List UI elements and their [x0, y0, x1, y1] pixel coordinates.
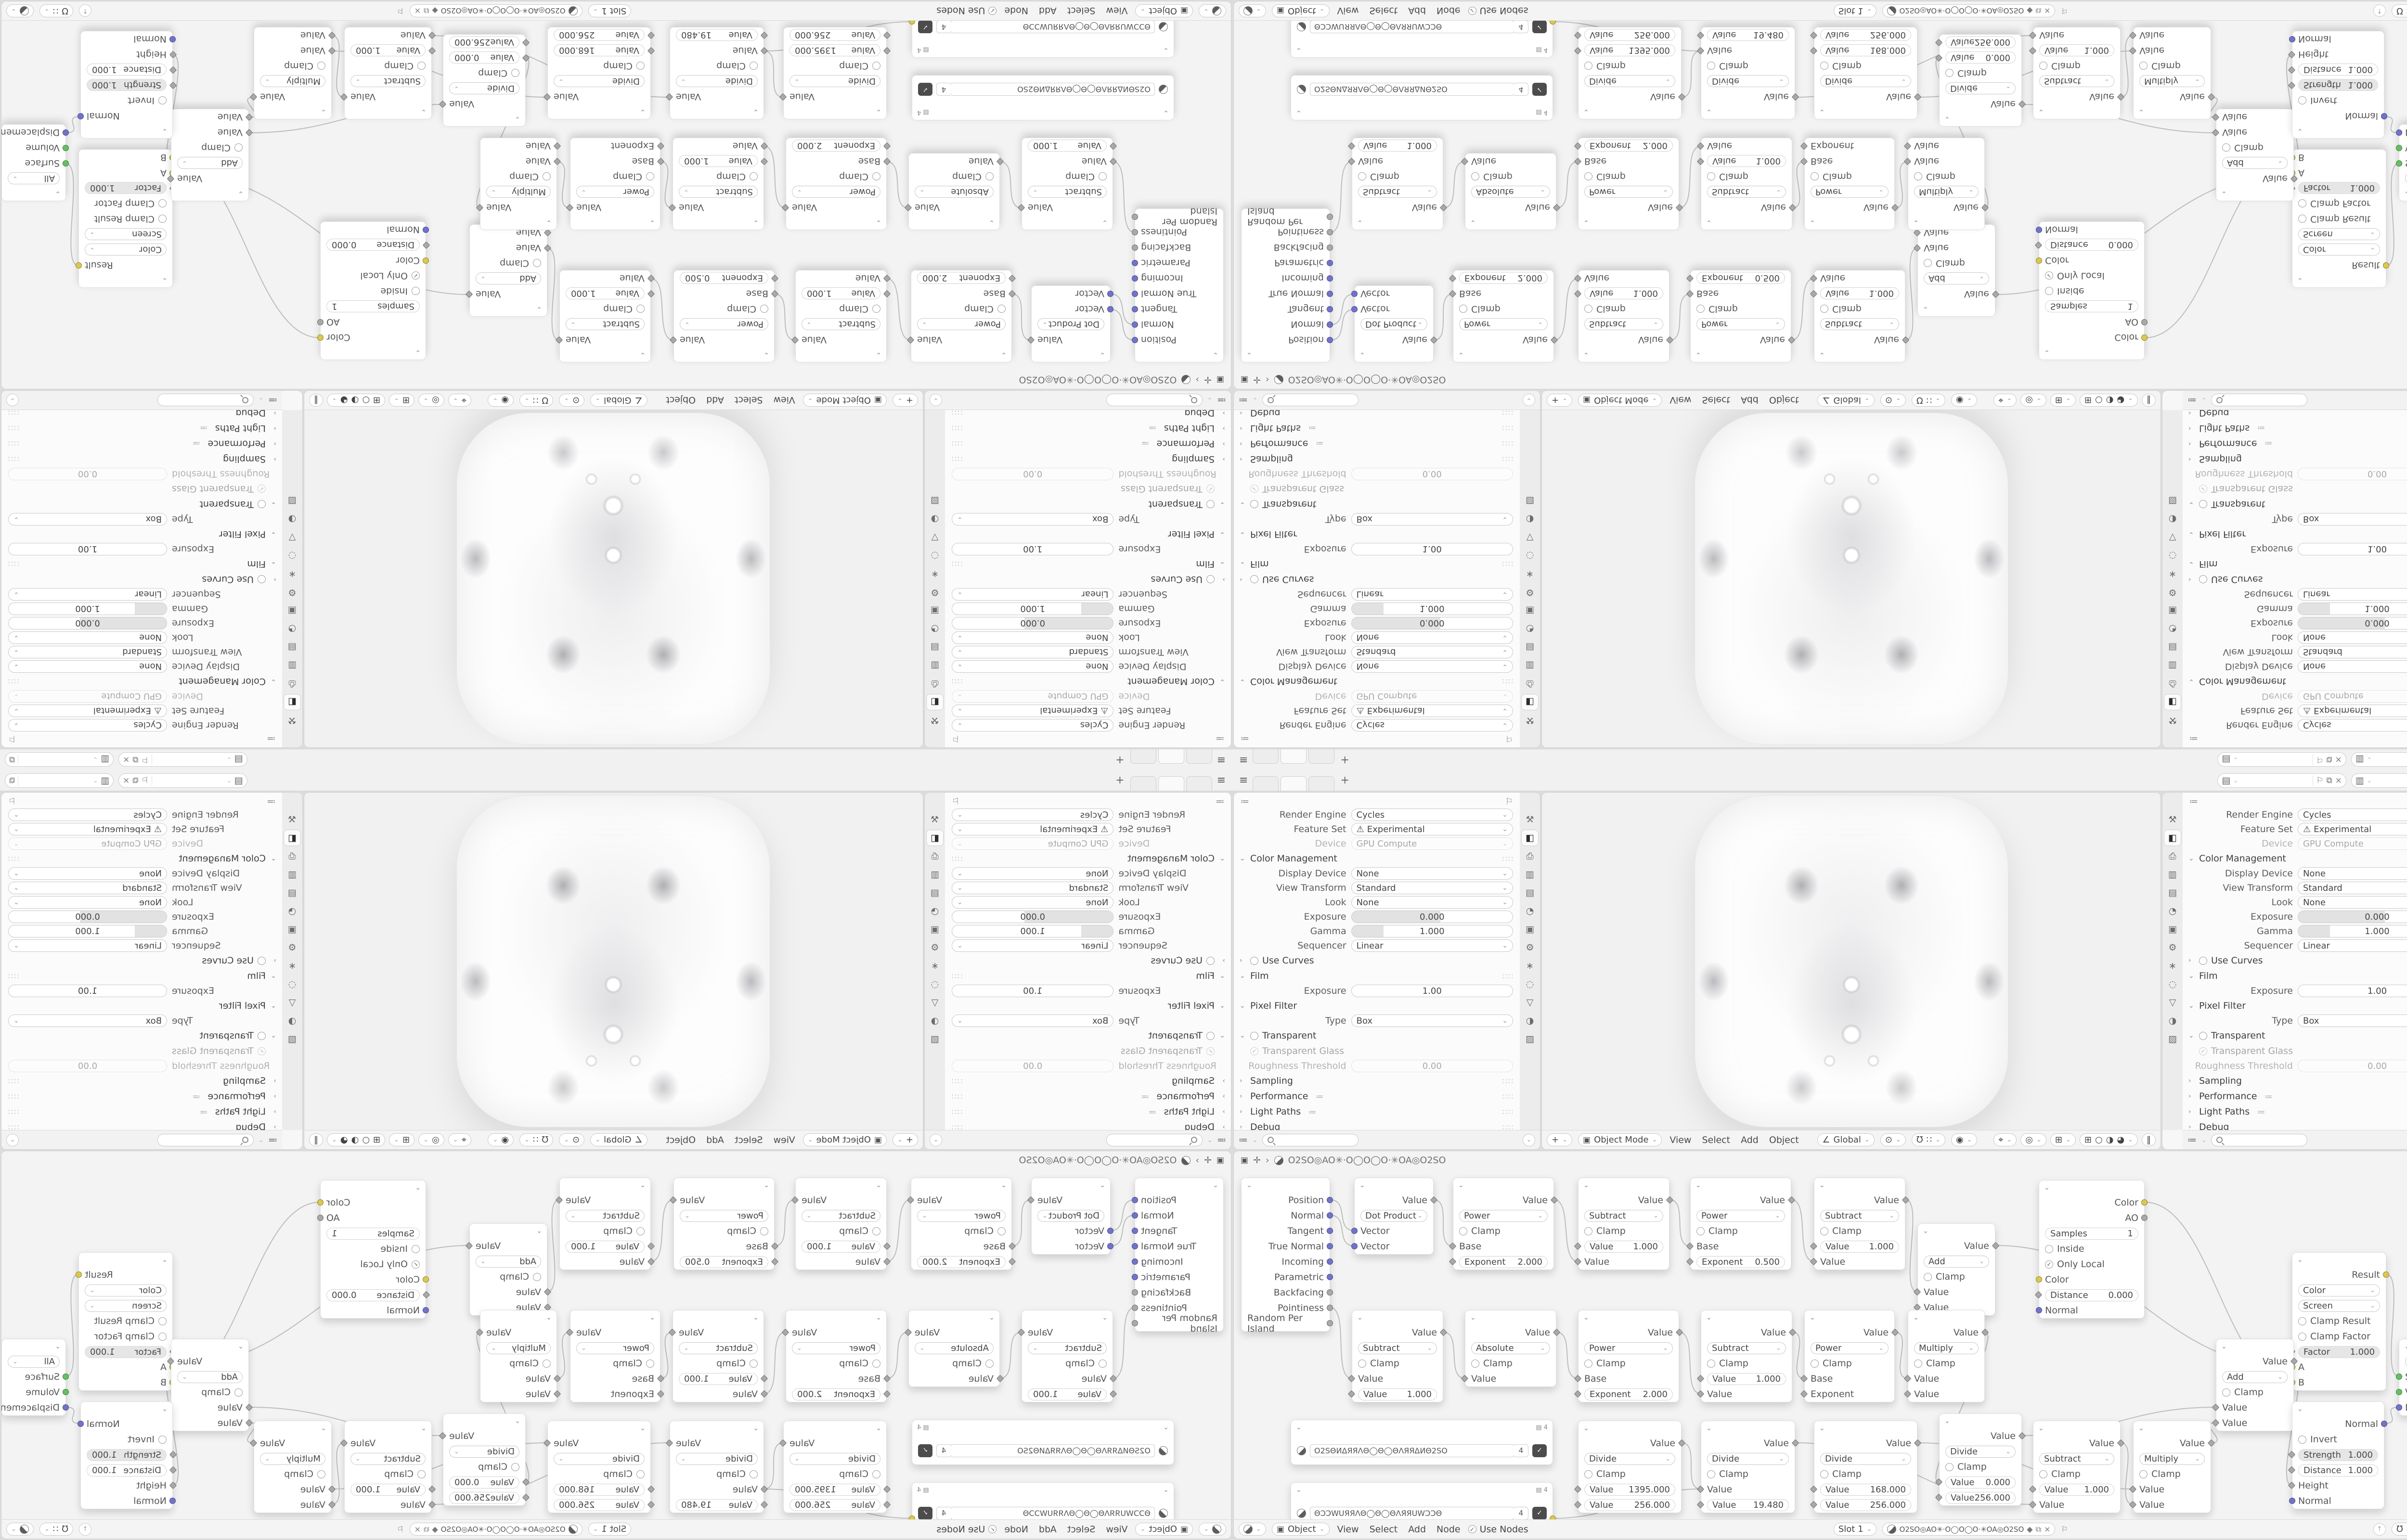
options-chevron-button[interactable]: ⌄: [1523, 1134, 1535, 1146]
properties-tab-object-data[interactable]: ▽: [1522, 995, 1538, 1010]
node-checkbox-clamp[interactable]: [533, 1273, 541, 1281]
tool-dropdown[interactable]: +⌄: [893, 1133, 918, 1146]
node-operation-dropdown[interactable]: Dot Product⌄: [1360, 1210, 1427, 1222]
node-math-power-1[interactable]: ⌄ValuePower⌄ClampBaseExponent2.000: [911, 270, 1012, 362]
node-collapse-icon[interactable]: ⌄: [536, 305, 542, 313]
socket-in-color[interactable]: [423, 257, 429, 264]
properties-search-input[interactable]: [157, 394, 254, 407]
copy-icon[interactable]: ⧉: [2326, 776, 2332, 785]
viewport-menu-add[interactable]: Add: [704, 1135, 726, 1145]
socket-out-result[interactable]: [2383, 1271, 2389, 1278]
node-menu-node[interactable]: Node: [1435, 1524, 1462, 1535]
view-layer-selector[interactable]: ▥⌄ ⧉: [5, 773, 114, 788]
editor-type-dropdown[interactable]: ⌄: [1199, 1523, 1226, 1536]
node-collapse-icon[interactable]: ⌄: [162, 1256, 168, 1264]
pin-icon[interactable]: ⚐: [2061, 6, 2068, 15]
value-field-exposure[interactable]: 1.00: [2298, 543, 2407, 555]
node-menu-select[interactable]: Select: [1065, 1524, 1098, 1535]
value-field-exposure[interactable]: 0.000: [952, 911, 1113, 923]
panel-section-film[interactable]: ⌄Film∷∷: [1234, 556, 1520, 572]
panel-section-film[interactable]: ⌄Film∷∷: [1, 556, 282, 572]
node-collapse-icon[interactable]: ⌄: [1296, 109, 1302, 116]
node-checkbox-clamp[interactable]: [750, 1360, 758, 1368]
preset-icon[interactable]: ≔: [193, 439, 200, 449]
node-checkbox-clamp[interactable]: [543, 173, 551, 181]
node-operation-dropdown[interactable]: Subtract⌄: [1707, 1342, 1786, 1354]
shader-mode-dropdown[interactable]: ▣Object⌄: [1136, 4, 1193, 17]
tool-dropdown[interactable]: +⌄: [893, 394, 918, 407]
viewport-object[interactable]: [457, 796, 770, 1127]
properties-tab-scene[interactable]: ▤: [2164, 640, 2181, 655]
select-device[interactable]: GPU Compute⌄: [8, 690, 167, 703]
preset-icon[interactable]: ≔: [1141, 1092, 1149, 1101]
node-image-data-1[interactable]: ⌄▤ 4O2SΘИΔЯЯΛΘ◯Θ◯ΘΛЯЯΔИΘ2SO4✓: [912, 75, 1174, 120]
node-collapse-icon[interactable]: ⌄: [1102, 1314, 1108, 1322]
node-math-divide-3[interactable]: ⌄ValueDivide⌄ClampValue168.000Value256.0…: [547, 1421, 651, 1513]
workspace-tab-active[interactable]: [1281, 776, 1307, 791]
node-collapse-icon[interactable]: ⌄: [876, 218, 881, 226]
properties-tab-material[interactable]: ◑: [927, 1013, 943, 1028]
proportional-editing-dropdown[interactable]: ◉⌄: [1951, 394, 1977, 407]
viewport-menu-object[interactable]: Object: [1767, 1135, 1801, 1145]
socket-in-displacement[interactable]: [63, 129, 69, 136]
node-math-divide-1[interactable]: ⌄ValueDivide⌄ClampValue1395.000Value256.…: [783, 1421, 887, 1513]
checkbox-row-use-curves[interactable]: ›Use Curves: [945, 572, 1231, 587]
node-math-divide-3[interactable]: ⌄ValueDivide⌄ClampValue168.000Value256.0…: [547, 27, 651, 119]
value-field-exposure[interactable]: 1.00: [952, 543, 1113, 555]
properties-tab-material[interactable]: ◑: [284, 1013, 300, 1028]
workspace-tab[interactable]: [1253, 749, 1279, 764]
panel-section-pixel-filter[interactable]: ⌄Pixel Filter: [1, 998, 282, 1014]
node-collapse-icon[interactable]: ⌄: [1296, 1486, 1302, 1494]
node-collapse-icon[interactable]: ⌄: [1913, 218, 1919, 226]
node-operation-dropdown[interactable]: Subtract⌄: [1584, 319, 1663, 331]
node-checkbox-only-local[interactable]: ✓: [412, 272, 420, 280]
node-vector-math[interactable]: ⌄ValueDot Product⌄VectorVector: [1031, 1178, 1111, 1255]
socket-out-true-normal[interactable]: [1132, 1243, 1138, 1249]
users-count[interactable]: 4: [1514, 83, 1528, 96]
datablock-name-field[interactable]: O2SΘИΔЯЯΛΘ◯Θ◯ΘΛЯЯΔИΘ2SO: [1310, 1444, 1514, 1457]
panel-section-transparent[interactable]: ⌄Transparent: [2183, 497, 2407, 512]
node-collapse-icon[interactable]: ⌄: [2404, 1343, 2407, 1350]
node-math-divide-4[interactable]: ⌄ValueDivide⌄ClampValue0.000Value256.000: [443, 1413, 526, 1506]
value-field-gamma[interactable]: 1.000: [2298, 925, 2407, 937]
value-field-roughness-threshold[interactable]: 0.00: [8, 1060, 167, 1072]
properties-tab-object[interactable]: ▣: [1522, 922, 1538, 937]
pin-icon[interactable]: ⚐: [952, 796, 959, 807]
fake-user-icon[interactable]: ◆: [2027, 1525, 2032, 1534]
node-collapse-icon[interactable]: ⌄: [1583, 1181, 1589, 1189]
socket-in-displacement[interactable]: [63, 1404, 69, 1411]
properties-tab-object[interactable]: ▣: [1522, 603, 1538, 618]
node-value-field-value[interactable]: Value256.000: [1584, 1499, 1675, 1511]
use-nodes-checkbox[interactable]: ✓Use Nodes: [1468, 6, 1528, 16]
node-collapse-icon[interactable]: ⌄: [2221, 1343, 2227, 1350]
panel-section-sampling[interactable]: ›Sampling∷∷: [945, 451, 1231, 467]
tool-dropdown[interactable]: +⌄: [1547, 1133, 1572, 1146]
node-checkbox-clamp[interactable]: [985, 1360, 994, 1368]
value-field-exposure[interactable]: 1.00: [8, 543, 167, 555]
snap-toggle[interactable]: Ʊ∷⌄: [519, 394, 553, 407]
node-value-field-value[interactable]: Value256.000: [449, 1492, 519, 1504]
panel-section-transparent[interactable]: ⌄Transparent: [1234, 1028, 1520, 1043]
socket-out-ao[interactable]: [2141, 1215, 2148, 1221]
node-checkbox-clamp[interactable]: [750, 62, 758, 70]
value-field-gamma[interactable]: 1.000: [952, 603, 1113, 615]
node-menu-add[interactable]: Add: [1037, 6, 1059, 16]
node-value-field-value[interactable]: Value256.000: [1820, 29, 1911, 41]
node-operation-dropdown[interactable]: All⌄: [8, 173, 60, 185]
node-math-subtract-5[interactable]: ⌄ValueSubtract⌄ClampValue1.000Value: [2033, 1421, 2121, 1513]
node-math-subtract-1[interactable]: ⌄ValueSubtract⌄ClampValue1.000Value: [795, 270, 887, 362]
select-look[interactable]: None⌄: [8, 631, 167, 644]
socket-out-result[interactable]: [2383, 262, 2389, 269]
node-value-field-value[interactable]: Value1.000: [679, 155, 758, 167]
datablock-name-field[interactable]: ΘƆƆWUЯЯΛΘ◯Θ◯ΘΛЯЯUWƆƆΘ: [950, 1507, 1155, 1520]
node-value-field-samples[interactable]: Samples1: [326, 1228, 420, 1240]
node-collapse-icon[interactable]: ⌄: [876, 108, 881, 115]
properties-tab-output[interactable]: ⎙: [284, 676, 300, 692]
mode-dropdown[interactable]: ▣Object Mode⌄: [1578, 1133, 1662, 1146]
workspace-tab[interactable]: [1186, 749, 1212, 764]
node-operation-dropdown[interactable]: Power⌄: [1584, 1342, 1673, 1354]
node-math-power-1[interactable]: ⌄ValuePower⌄ClampBaseExponent2.000: [1453, 270, 1554, 362]
node-checkbox-clamp[interactable]: [760, 305, 768, 313]
select-view-transform[interactable]: Standard⌄: [1351, 882, 1513, 894]
checkbox[interactable]: ✓: [2199, 1047, 2207, 1055]
properties-search-input[interactable]: [157, 1134, 254, 1146]
app-menu-icon[interactable]: ≡: [1239, 774, 1248, 786]
select-sequencer[interactable]: Linear⌄: [1351, 939, 1513, 952]
node-bump[interactable]: ⌄NormalInvertStrength1.000Distance1.000H…: [80, 31, 173, 139]
node-ambient-occlusion[interactable]: ⌄ColorAOSamples1Inside✓Only LocalColorDi…: [2039, 221, 2145, 360]
node-checkbox-clamp[interactable]: [1099, 1360, 1107, 1368]
node-collapse-icon[interactable]: ⌄: [649, 218, 655, 226]
node-operation-dropdown[interactable]: Subtract⌄: [802, 1210, 880, 1222]
section-checkbox[interactable]: [1250, 500, 1258, 509]
properties-tab-output[interactable]: ⎙: [1522, 676, 1538, 692]
panel-section-pixel-filter[interactable]: ⌄Pixel Filter: [1234, 526, 1520, 542]
node-collapse-icon[interactable]: ⌄: [55, 190, 61, 197]
node-operation-dropdown[interactable]: Power⌄: [1459, 1210, 1548, 1222]
node-menu-view[interactable]: View: [1104, 6, 1129, 16]
panel-section-transparent[interactable]: ⌄Transparent: [1, 497, 282, 512]
value-field-gamma[interactable]: 1.000: [2298, 603, 2407, 615]
viewport-menu-view[interactable]: View: [772, 395, 797, 406]
properties-tab-render[interactable]: ◧: [2164, 694, 2181, 710]
slot-dropdown[interactable]: Slot 1⌄: [1834, 4, 1877, 17]
properties-tab-world[interactable]: ◔: [927, 903, 943, 919]
panel-section-pixel-filter[interactable]: ⌄Pixel Filter: [1234, 998, 1520, 1014]
node-math-power-3[interactable]: ⌄ValuePower⌄ClampBaseExponent2.000: [1578, 138, 1679, 230]
properties-tab-world[interactable]: ◔: [1522, 621, 1538, 637]
socket-in-vector[interactable]: [1107, 306, 1113, 312]
node-collapse-icon[interactable]: ⌄: [162, 127, 168, 135]
node-value-field-value[interactable]: Value256.000: [1584, 29, 1675, 41]
node-checkbox-inside[interactable]: [2045, 1245, 2053, 1253]
properties-tab-texture[interactable]: ▨: [284, 1031, 300, 1047]
socket-out-true-normal[interactable]: [1327, 1243, 1333, 1249]
fake-user-shield-icon[interactable]: ✓: [1532, 83, 1547, 96]
node-math-power-4[interactable]: ⌄ValuePower⌄ClampBaseExponent: [570, 138, 660, 230]
select-render-engine[interactable]: Cycles⌄: [2298, 808, 2407, 821]
node-collapse-icon[interactable]: ⌄: [1810, 218, 1815, 226]
node-operation-dropdown[interactable]: Power⌄: [917, 319, 1006, 331]
node-collapse-icon[interactable]: ⌄: [1296, 1424, 1302, 1431]
node-operation-dropdown[interactable]: Subtract⌄: [1358, 186, 1437, 198]
node-checkbox-clamp[interactable]: [750, 173, 758, 181]
node-value-field-value[interactable]: Value256.000: [449, 37, 519, 49]
socket-out-random-per-island[interactable]: [1132, 214, 1138, 220]
node-operation-dropdown[interactable]: Multiply⌄: [2139, 76, 2205, 88]
preset-icon[interactable]: ≔: [2265, 439, 2272, 449]
checkbox[interactable]: ✓: [1206, 485, 1215, 493]
preset-icon[interactable]: ≔: [2257, 424, 2265, 433]
node-math-subtract-2[interactable]: ⌄ValueSubtract⌄ClampValue1.000Value: [559, 1178, 651, 1270]
reroute-button[interactable]: ↑: [2373, 5, 2386, 17]
add-workspace-button[interactable]: +: [1340, 754, 1349, 766]
node-collapse-icon[interactable]: ⌄: [2044, 348, 2050, 356]
reroute-button[interactable]: ↑: [79, 1523, 91, 1536]
node-checkbox-clamp[interactable]: [2139, 1470, 2148, 1478]
node-menu-select[interactable]: Select: [1368, 6, 1400, 16]
node-checkbox-clamp[interactable]: [2139, 62, 2148, 70]
socket-in-normal[interactable]: [169, 36, 176, 42]
node-value-field-value[interactable]: Value0.000: [449, 1476, 519, 1489]
properties-tab-world[interactable]: ◔: [284, 903, 300, 919]
node-operation-dropdown[interactable]: Power⌄: [576, 1342, 654, 1354]
node-math-subtract-3[interactable]: ⌄ValueSubtract⌄ClampValueValue1.000: [1022, 138, 1113, 230]
node-math-subtract-4[interactable]: ⌄ValueSubtract⌄ClampValue1.000Value: [673, 138, 764, 230]
socket-out-normal[interactable]: [78, 113, 84, 119]
reroute-button[interactable]: ↑: [79, 5, 91, 17]
node-operation-dropdown[interactable]: Multiply⌄: [260, 1453, 325, 1465]
node-checkbox-clamp[interactable]: [646, 173, 654, 181]
node-math-absolute[interactable]: ⌄ValueAbsolute⌄ClampValue: [908, 153, 1000, 230]
properties-tab-material[interactable]: ◑: [284, 512, 300, 527]
node-collapse-icon[interactable]: ⌄: [1583, 1314, 1589, 1322]
properties-search-input[interactable]: [1106, 394, 1203, 407]
socket-in-vector[interactable]: [1351, 291, 1358, 297]
node-value-field-value[interactable]: Value1.000: [1028, 1388, 1107, 1400]
node-checkbox-clamp[interactable]: [1924, 1273, 1932, 1281]
node-value-field-distance[interactable]: Distance0.000: [326, 1289, 420, 1301]
socket-in-color[interactable]: [423, 1276, 429, 1283]
viewport-canvas[interactable]: [1542, 410, 2161, 747]
node-math-power-2[interactable]: ⌄ValuePower⌄ClampBaseExponent0.500: [1690, 1178, 1791, 1270]
sliders-icon[interactable]: ≔: [267, 796, 275, 807]
preset-icon[interactable]: ≔: [200, 1107, 207, 1116]
socket-in-displacement[interactable]: [2396, 129, 2402, 136]
node-operation-dropdown[interactable]: Color⌄: [85, 1284, 167, 1296]
copy-icon[interactable]: ⧉: [424, 1525, 429, 1534]
properties-tab-render[interactable]: ◧: [927, 830, 943, 846]
select-look[interactable]: None⌄: [2298, 631, 2407, 644]
node-checkbox-clamp[interactable]: [1584, 305, 1592, 313]
node-checkbox-clamp-result[interactable]: [2298, 1317, 2306, 1325]
socket-in-vector[interactable]: [1107, 291, 1113, 297]
select-render-engine[interactable]: Cycles⌄: [2298, 719, 2407, 731]
select-render-engine[interactable]: Cycles⌄: [1351, 808, 1513, 821]
select-view-transform[interactable]: Standard⌄: [952, 882, 1113, 894]
node-collapse-icon[interactable]: ⌄: [415, 348, 421, 356]
socket-in-volume[interactable]: [63, 145, 69, 151]
node-math-multiply-2[interactable]: ⌄ValueMultiply⌄ClampValueValue: [254, 27, 332, 119]
select-render-engine[interactable]: Cycles⌄: [8, 719, 167, 731]
preset-icon[interactable]: ≔: [2265, 1092, 2272, 1101]
node-checkbox-clamp[interactable]: [1914, 173, 1922, 181]
node-value-field-exponent[interactable]: Exponent2.000: [917, 1256, 1006, 1268]
node-vector-math[interactable]: ⌄ValueDot Product⌄VectorVector: [1354, 285, 1434, 362]
node-math-power-4[interactable]: ⌄ValuePower⌄ClampBaseExponent: [570, 1310, 660, 1402]
value-field-exposure[interactable]: 1.00: [2298, 985, 2407, 997]
node-math-add-1[interactable]: ⌄ValueAdd⌄ClampValueValue: [1917, 224, 1995, 317]
node-checkbox-clamp[interactable]: [872, 305, 880, 313]
node-collapse-icon[interactable]: ⌄: [162, 1405, 168, 1413]
node-operation-dropdown[interactable]: Absolute⌄: [915, 186, 994, 198]
node-value-field-value[interactable]: Value168.000: [1820, 1484, 1911, 1496]
node-math-subtract-5[interactable]: ⌄ValueSubtract⌄ClampValue1.000Value: [344, 27, 432, 119]
properties-tab-physics[interactable]: ◌: [2164, 976, 2181, 992]
copy-icon[interactable]: ⧉: [2326, 755, 2332, 765]
node-collapse-icon[interactable]: ⌄: [2297, 1256, 2303, 1264]
panel-section-light-paths[interactable]: ›Light Paths≔∷∷: [1234, 421, 1520, 436]
node-math-power-2[interactable]: ⌄ValuePower⌄ClampBaseExponent0.500: [1690, 270, 1791, 362]
socket-in-surface[interactable]: [63, 160, 69, 167]
socket-out-position[interactable]: [1327, 1197, 1333, 1203]
node-checkbox-clamp[interactable]: [1820, 305, 1828, 313]
node-value-field-value[interactable]: Value1.000: [350, 1484, 426, 1496]
node-operation-dropdown[interactable]: Divide⌄: [1945, 1446, 2016, 1458]
properties-tab-view-layer[interactable]: ▥: [284, 867, 300, 882]
properties-tab-material[interactable]: ◑: [1522, 1013, 1538, 1028]
panel-section-sampling[interactable]: ›Sampling∷∷: [945, 1073, 1231, 1089]
node-value-field-value[interactable]: Value1.000: [1707, 155, 1786, 167]
node-value-field-value[interactable]: Value1395.000: [789, 1484, 880, 1496]
node-checkbox-clamp[interactable]: [1584, 1360, 1592, 1368]
select-type[interactable]: Box⌄: [952, 513, 1113, 526]
node-value-field-value[interactable]: Value19.480: [1707, 29, 1789, 41]
slot-dropdown[interactable]: Slot 1⌄: [588, 1523, 632, 1536]
node-math-power-3[interactable]: ⌄ValuePower⌄ClampBaseExponent2.000: [786, 138, 887, 230]
socket-out-random-per-island[interactable]: [1327, 214, 1333, 220]
node-collapse-icon[interactable]: ⌄: [1810, 1314, 1815, 1322]
node-operation-dropdown[interactable]: Divide⌄: [789, 76, 880, 88]
node-operation-dropdown[interactable]: Add⌄: [2222, 157, 2288, 169]
node-checkbox-clamp[interactable]: [1584, 1470, 1592, 1478]
panel-section-color-management[interactable]: ⌄Color Management∷∷: [2183, 851, 2407, 866]
pivot-dropdown[interactable]: ⊙⌄: [559, 1133, 584, 1146]
node-operation-dropdown[interactable]: Subtract⌄: [1358, 1342, 1437, 1354]
node-material-output[interactable]: ⌄All⌄SurfaceVolumeDisplacement: [1, 1339, 66, 1416]
shading-material-icon[interactable]: ◑: [2106, 1135, 2114, 1145]
node-ambient-occlusion[interactable]: ⌄ColorAOSamples1Inside✓Only LocalColorDi…: [320, 1180, 426, 1319]
shader-mode-dropdown[interactable]: ▣Object⌄: [1272, 1523, 1330, 1536]
node-checkbox-clamp[interactable]: [636, 1470, 645, 1478]
pin-icon[interactable]: ⚐: [1505, 796, 1513, 807]
properties-tab-render[interactable]: ◧: [2164, 830, 2181, 846]
fake-user-shield-icon[interactable]: ✓: [1532, 1507, 1547, 1520]
node-collapse-icon[interactable]: ⌄: [1213, 351, 1218, 359]
socket-out-tangent[interactable]: [1327, 1228, 1333, 1234]
node-geometry[interactable]: ⌄PositionNormalTangentTrue NormalIncomin…: [1135, 1178, 1224, 1332]
properties-tab-texture[interactable]: ▨: [2164, 1031, 2181, 1047]
select-sequencer[interactable]: Linear⌄: [8, 588, 167, 601]
node-collapse-icon[interactable]: ⌄: [2138, 108, 2144, 115]
properties-tab-view-layer[interactable]: ▥: [284, 658, 300, 673]
node-collapse-icon[interactable]: ⌄: [989, 1314, 995, 1322]
node-math-subtract-2[interactable]: ⌄ValueSubtract⌄ClampValue1.000Value: [559, 270, 651, 362]
node-operation-dropdown[interactable]: Color⌄: [2298, 244, 2380, 256]
select-display-device[interactable]: None⌄: [2298, 660, 2407, 673]
node-operation-dropdown[interactable]: Add⌄: [476, 273, 541, 285]
properties-search-input[interactable]: [2211, 394, 2307, 407]
checkbox-row-use-curves[interactable]: ›Use Curves: [1, 953, 282, 968]
node-operation-dropdown[interactable]: Multiply⌄: [1914, 1342, 1979, 1354]
pin-icon[interactable]: ⚐: [2316, 776, 2323, 785]
properties-tab-view-layer[interactable]: ▥: [1522, 658, 1538, 673]
node-operation-dropdown[interactable]: Dot Product⌄: [1360, 319, 1427, 331]
select-device[interactable]: GPU Compute⌄: [952, 837, 1113, 850]
properties-tab-object-data[interactable]: ▽: [284, 530, 300, 545]
material-datablock-selector[interactable]: O2SO◎AO✳·O◯O◯O·✳OA◎O2SO ◆ ⧉ ×: [410, 4, 582, 17]
overlays-toggle[interactable]: ◎⌄: [418, 1133, 444, 1146]
socket-out-incoming[interactable]: [1327, 275, 1333, 282]
properties-tab-object[interactable]: ▣: [284, 922, 300, 937]
mode-dropdown[interactable]: ▣Object Mode⌄: [803, 1133, 887, 1146]
preset-icon[interactable]: ≔: [1316, 1092, 1323, 1101]
socket-out-backfacing[interactable]: [1327, 244, 1333, 251]
panel-section-film[interactable]: ⌄Film∷∷: [2183, 556, 2407, 572]
viewport-object[interactable]: [1695, 413, 2008, 744]
panel-section-performance[interactable]: ›Performance≔∷∷: [2183, 436, 2407, 451]
node-operation-dropdown[interactable]: Add⌄: [1924, 1256, 1989, 1268]
preset-icon[interactable]: ≔: [1141, 439, 1149, 449]
xray-toggle[interactable]: ⊞⌄: [389, 394, 414, 407]
pin-icon[interactable]: ⚐: [8, 733, 16, 744]
socket-in-color[interactable]: [2036, 257, 2042, 264]
snap-toggle[interactable]: Ʊ∷⌄: [1912, 394, 1945, 407]
properties-tab-scene[interactable]: ▤: [927, 640, 943, 655]
pin-icon[interactable]: ⚐: [397, 6, 403, 15]
node-math-absolute[interactable]: ⌄ValueAbsolute⌄ClampValue: [1465, 1310, 1556, 1387]
shading-material-icon[interactable]: ◑: [2106, 395, 2114, 405]
select-render-engine[interactable]: Cycles⌄: [8, 808, 167, 821]
view-layer-name-field[interactable]: [18, 775, 90, 786]
workspace-tab[interactable]: [1186, 776, 1212, 791]
properties-tab-scene[interactable]: ▤: [1522, 885, 1538, 900]
panel-section-pixel-filter[interactable]: ⌄Pixel Filter: [2183, 526, 2407, 542]
node-collapse-icon[interactable]: ⌄: [1923, 305, 1928, 313]
node-math-absolute[interactable]: ⌄ValueAbsolute⌄ClampValue: [1465, 153, 1556, 230]
view-layer-selector[interactable]: ▥⌄ ⧉: [2351, 773, 2407, 788]
fake-user-shield-icon[interactable]: ✓: [918, 1444, 932, 1457]
properties-editor-icon[interactable]: ≔: [2187, 395, 2197, 406]
node-value-field-exponent[interactable]: Exponent2.000: [792, 140, 880, 152]
section-checkbox[interactable]: [1250, 1032, 1258, 1040]
checkbox[interactable]: [1250, 957, 1258, 965]
node-value-field-value[interactable]: Value1.000: [802, 288, 880, 300]
socket-out-tangent[interactable]: [1132, 1228, 1138, 1234]
socket-out-parametric[interactable]: [1132, 260, 1138, 266]
node-menu-select[interactable]: Select: [1065, 6, 1098, 16]
node-operation-dropdown[interactable]: Subtract⌄: [2039, 76, 2114, 88]
checkbox[interactable]: ✓: [1250, 485, 1258, 493]
pin-icon[interactable]: ⚐: [1505, 733, 1513, 744]
properties-tab-view-layer[interactable]: ▥: [2164, 867, 2181, 882]
section-checkbox[interactable]: [258, 1032, 266, 1040]
node-operation-dropdown[interactable]: Divide⌄: [1820, 1453, 1911, 1465]
